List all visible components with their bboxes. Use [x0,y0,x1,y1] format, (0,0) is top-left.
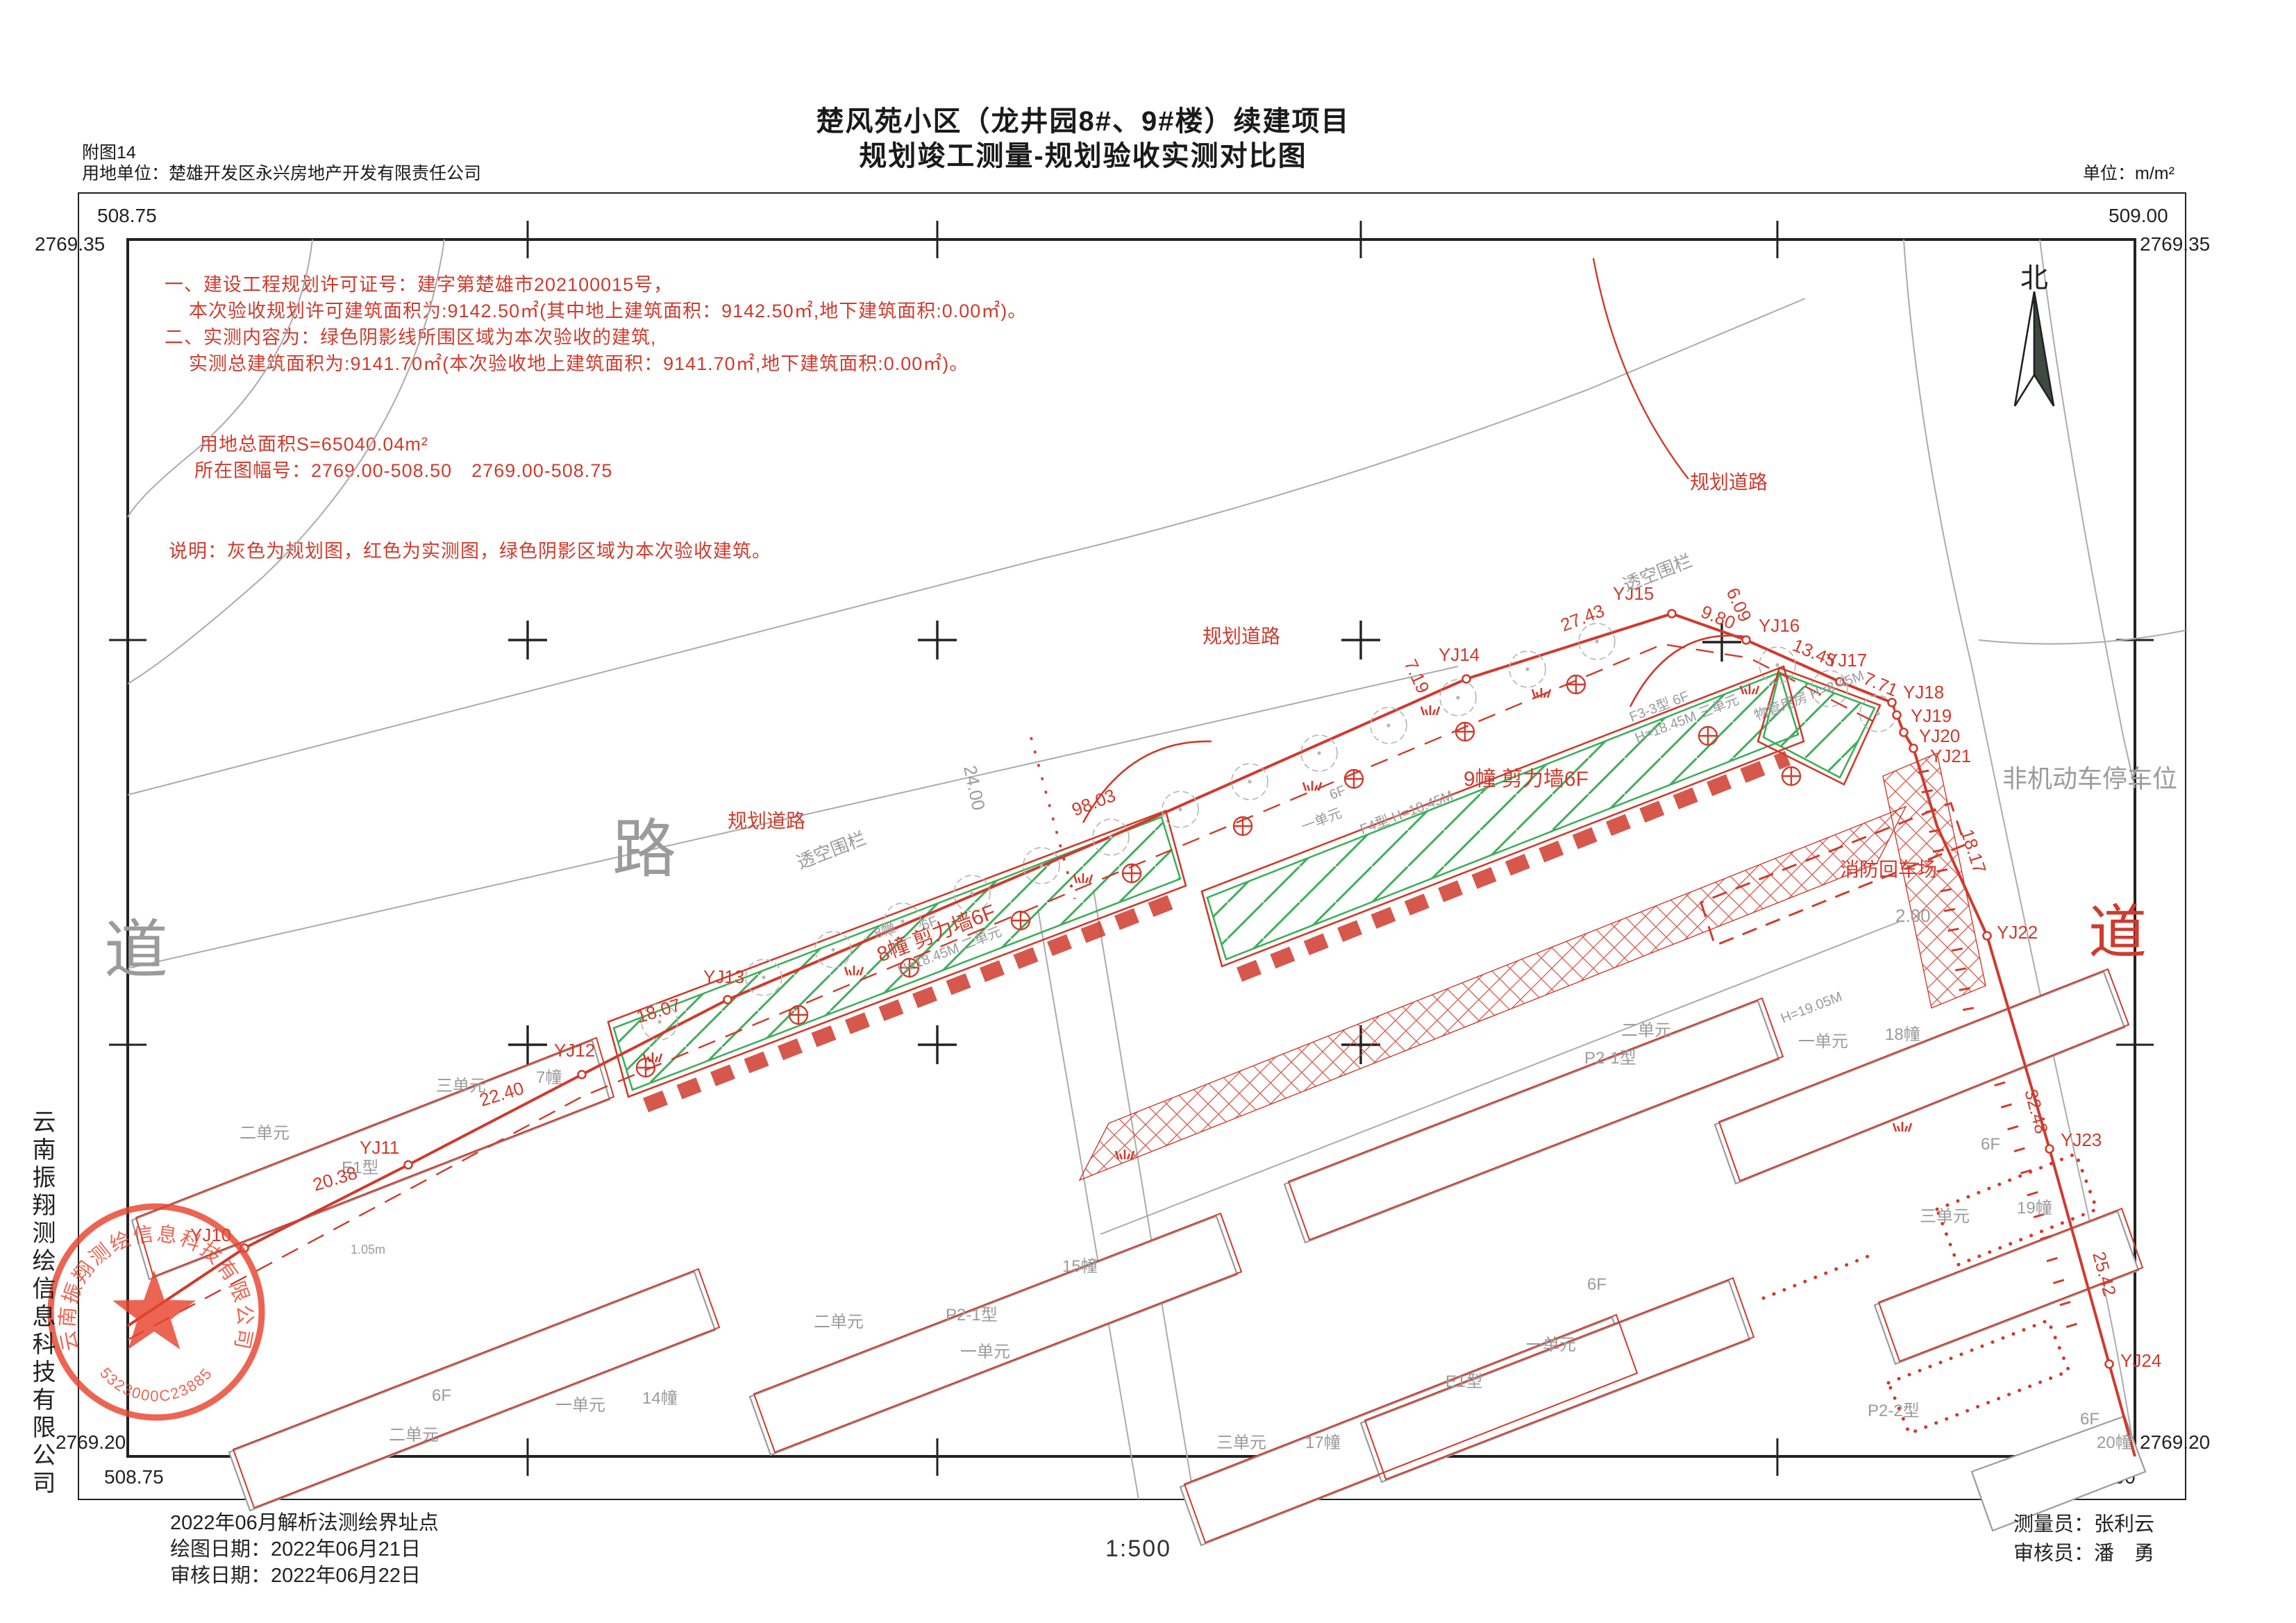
footer-surveyor: 测量员：张利云 [2013,1508,2154,1537]
map-label: 非机动车停车位 [2002,764,2177,793]
map-label: P2-2型 [1868,1402,1920,1420]
boundary-point-marker [1984,932,1991,940]
shrub-icon [1456,723,1474,741]
map-label: 一单元 [960,1343,1010,1361]
map-label: 二单元 [240,1124,290,1143]
entrance-arc [1083,741,1212,823]
map-label: 一单元 [555,1396,605,1415]
tree-icon [1301,735,1337,771]
footer-draw-date: 绘图日期：2022年06月21日 [170,1533,421,1562]
boundary-point-marker [1900,729,1908,737]
map-label: 三单元 [1920,1207,1970,1226]
shrub-icon [1123,864,1141,882]
boundary-point-label: YJ20 [1919,725,1960,746]
north-label: 北 [2020,263,2048,294]
shrub-icon [1699,727,1717,745]
building-blocks [132,969,2145,1545]
boundary-point-label: YJ19 [1911,705,1952,726]
dimension-label: 13.45 [1790,634,1840,671]
map-label: 道 [104,915,168,986]
boundary-point-label: YJ11 [360,1137,399,1158]
map-label: 路 [612,814,676,885]
dimension-label: 1.05m [351,1243,385,1256]
boundary-point-label: YJ13 [703,966,744,987]
seal-number-text: 5323000C23885 [97,1364,216,1404]
map-label: 9幢 剪力墙6F [1464,768,1589,791]
boundary-point-marker [1463,675,1470,683]
tree-icon [1509,651,1545,687]
map-label: 一单元 [1300,805,1344,835]
map-label: 6F [432,1386,451,1405]
map-label: H=19.05M [1779,989,1845,1027]
boundary-point-marker [724,996,732,1004]
shrub-icon [1782,767,1800,785]
map-scale: 1:500 [1105,1536,1171,1563]
dimension-label: 32.48 [2020,1087,2052,1136]
map-label: 透空围栏 [794,827,869,873]
map-label: 6F [1587,1275,1607,1294]
shrub-icon [1345,770,1363,788]
map-label: 规划道路 [728,810,805,832]
map-label: 6F [1981,1135,2000,1154]
map-label: 7幢 [536,1068,562,1087]
boundary-point-marker [405,1161,412,1169]
map-label: 二单元 [814,1313,864,1331]
boundary-point-marker [1668,610,1676,618]
map-label: P2-1型 [1584,1049,1636,1068]
boundary-point-marker [2106,1361,2113,1368]
boundary-point-marker [1743,637,1750,644]
shrub-icon [1567,675,1585,693]
dimension-label: 98.03 [1069,784,1118,820]
seal-star [112,1270,196,1349]
tree-icon [1440,680,1476,716]
shrub-icon [1012,911,1030,930]
tree-icon [1162,791,1198,827]
footer-review-date: 审核日期：2022年06月22日 [170,1559,421,1588]
map-label: 一单元 [1526,1336,1576,1354]
map-label: 17幢 [1305,1433,1341,1452]
dimension-label: 2.00 [1895,905,1931,926]
map-label: 15幢 [1062,1257,1098,1276]
boundary-point-label: YJ12 [554,1040,595,1061]
site-plan-map: YJ10YJ11YJ12YJ13YJ14YJ15YJ16YJ17YJ18YJ19… [0,0,2296,1623]
svg-text:5323000C23885: 5323000C23885 [97,1364,216,1404]
map-label: P2-1型 [946,1306,998,1325]
map-label: 6F [1327,783,1348,803]
boundary-point-label: YJ24 [2120,1350,2161,1371]
boundary-point-label: YJ23 [2061,1129,2102,1150]
drawing-sheet: { "doc": { "figure_no": "附图14", "land_us… [0,0,2296,1623]
boundary-point-label: YJ16 [1759,615,1800,636]
bush-icon [1421,705,1439,715]
surveying-company-vertical: 云南振翔测绘信息科技有限公司 [25,1109,59,1484]
map-label: 一单元 [1798,1032,1848,1051]
boundary-point-label: YJ18 [1903,682,1944,703]
shrub-icon [789,1006,807,1024]
map-label: 规划道路 [1203,625,1280,647]
map-label: 规划道路 [1690,471,1768,493]
map-label: 18幢 [1885,1025,1920,1044]
boundary-point-label: YJ21 [1930,746,1971,766]
bush-icon [1303,781,1321,791]
map-label: E1型 [1446,1372,1482,1391]
map-label: 道 [2088,900,2147,965]
map-label: 二单元 [1621,1021,1671,1040]
dimension-label: 18.17 [1956,827,1991,876]
footer-method-line: 2022年06月解析法测绘界址点 [170,1506,439,1536]
map-label: 二单元 [389,1426,439,1445]
north-arrow: 北 [2015,263,2054,406]
bush-icon [1893,1122,1911,1132]
map-label: 消防回车场 [1840,859,1937,880]
map-label: 三单元 [1216,1433,1266,1452]
shrub-icon [1234,817,1252,835]
dimension-label: 24.00 [960,764,989,812]
boundary-point-label: YJ14 [1439,644,1480,665]
dimension-label: 7.71 [1861,668,1901,700]
boundary-point-marker [578,1071,586,1079]
dimension-label: 7.19 [1400,656,1434,697]
map-label: 19幢 [2017,1199,2052,1218]
map-label: 透空围栏 [1620,550,1695,595]
boundary-point-marker [2046,1145,2054,1153]
boundary-point-marker [1910,745,1918,752]
boundary-point-label: YJ22 [1997,922,2038,943]
map-label: 20幢 [2097,1433,2132,1452]
map-label: 6F [2080,1410,2100,1429]
boundary-point-marker [1893,712,1901,719]
map-label: 14幢 [642,1389,678,1408]
footer-checker: 审核员：潘 勇 [2013,1537,2154,1566]
